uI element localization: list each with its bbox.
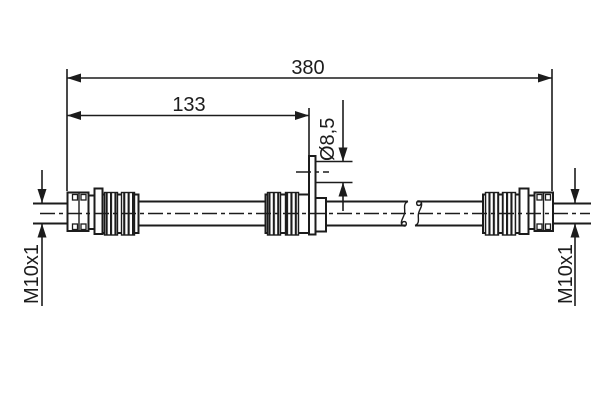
hose-assembly-drawing: 380 133 Ø8,5 M10x1 M10x1 xyxy=(0,0,600,400)
dimension-thread-left: M10x1 xyxy=(21,170,47,306)
dimension-left-section: 133 xyxy=(67,94,309,156)
middle-collar xyxy=(316,198,327,232)
arrowhead-up xyxy=(571,224,580,238)
left-collar xyxy=(95,189,103,235)
arrowhead-right xyxy=(538,74,552,83)
arrowhead-down xyxy=(571,189,580,203)
dim-380-label: 380 xyxy=(291,57,324,79)
middle-bracket-fitting xyxy=(266,156,327,235)
dim-hole-diameter-label: Ø8,5 xyxy=(317,118,339,161)
drawing-canvas: 380 133 Ø8,5 M10x1 M10x1 xyxy=(0,0,600,400)
right-collar xyxy=(520,189,529,235)
dimension-hole-diameter: Ø8,5 xyxy=(316,100,353,211)
arrowhead-up xyxy=(339,183,348,197)
arrowhead-down xyxy=(339,148,348,162)
arrowhead-down xyxy=(38,189,47,203)
arrowhead-up xyxy=(38,224,47,238)
dimension-thread-right: M10x1 xyxy=(555,168,580,306)
thread-right-label: M10x1 xyxy=(555,244,577,304)
arrowhead-right xyxy=(295,111,309,120)
left-end-fitting xyxy=(33,189,139,236)
dim-133-label: 133 xyxy=(172,94,205,116)
thread-left-label: M10x1 xyxy=(21,244,43,304)
arrowhead-left xyxy=(67,74,81,83)
arrowhead-left xyxy=(67,111,81,120)
